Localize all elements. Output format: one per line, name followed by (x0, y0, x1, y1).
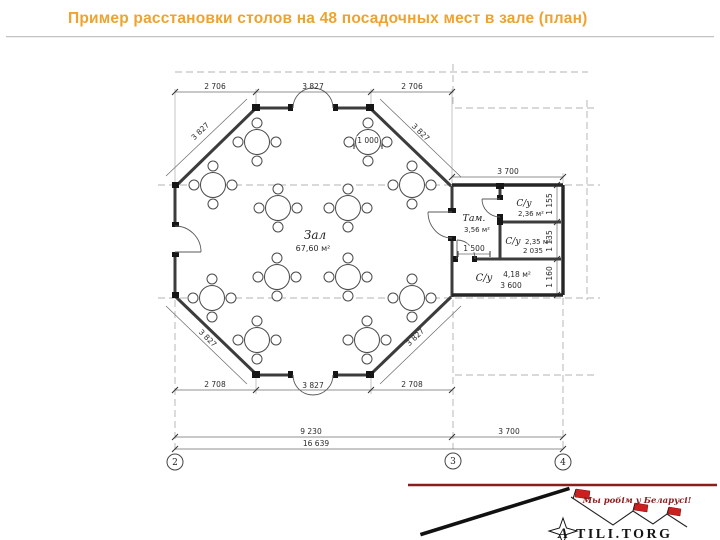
dim-diag-bottom-right: 3 827 (404, 326, 426, 348)
plan-labels: 2 706 3 827 2 706 2 708 3 827 2 708 3 70… (189, 82, 554, 448)
dining-table (324, 253, 372, 301)
dim-diag-top-left: 3 827 (189, 120, 211, 142)
dim-total-annex: 3 700 (498, 427, 520, 436)
room-wc-bottom-name: С/у (476, 273, 493, 284)
room-hall-area: 67,60 м² (296, 244, 331, 253)
dim-tambour-door: 1 500 (463, 244, 485, 253)
logo-slogan: Мы робім у Беларусі! (582, 495, 692, 506)
dim-bottom-right: 2 708 (401, 380, 423, 389)
logo-mountain-thick-line (417, 488, 573, 534)
dining-table (253, 253, 301, 301)
company-logo: Мы робім у Беларусі! A TILI.TORG (408, 485, 717, 540)
room-wc-mid-width: 2 035 (523, 247, 543, 255)
grid-centerlines (158, 64, 600, 450)
room-wc-top-name: С/у (516, 199, 532, 209)
logo-brand-initial: A (557, 526, 568, 540)
dim-top-left: 2 706 (204, 82, 226, 91)
grid-markers: 2 3 4 (167, 453, 571, 470)
dim-total-hall: 9 230 (300, 427, 322, 436)
grid-marker-2: 2 (172, 458, 178, 468)
grid-marker-3: 3 (450, 457, 456, 467)
dim-diag-top-right: 3 827 (410, 122, 432, 144)
dining-table (343, 316, 391, 364)
room-wc-bottom-width: 3 600 (500, 281, 522, 290)
dining-table (388, 161, 436, 209)
room-wc-top-area: 2,36 м² (518, 210, 544, 218)
dim-annex-top: 3 700 (497, 167, 519, 176)
dim-side-top: 1 155 (545, 193, 554, 215)
grid-marker-4: 4 (560, 458, 566, 468)
dim-top-right: 2 706 (401, 82, 423, 91)
dim-total-overall: 16 639 (303, 439, 329, 448)
dim-table-diameter: 1 000 (357, 136, 379, 145)
room-wc-bottom-area: 4,18 м² (503, 270, 531, 279)
room-hall-name: Зал (304, 228, 326, 242)
room-tambour-name: Там. (463, 213, 486, 224)
dining-table (324, 184, 372, 232)
room-wc-mid-area: 2,35 м² (525, 238, 551, 246)
floor-plan-drawing: 2 706 3 827 2 706 2 708 3 827 2 708 3 70… (0, 0, 720, 540)
dim-bottom-center: 3 827 (302, 381, 324, 390)
room-tambour-area: 3,56 м² (464, 226, 490, 234)
room-wc-mid-name: С/у (505, 237, 521, 247)
dining-table (254, 184, 302, 232)
dining-table (388, 274, 436, 322)
logo-brand-text: TILI.TORG (576, 527, 673, 540)
dim-top-center: 3 827 (302, 82, 324, 91)
dim-side-bottom: 1 160 (545, 266, 554, 288)
dim-bottom-left: 2 708 (204, 380, 226, 389)
logo-flag-icon (667, 507, 681, 516)
